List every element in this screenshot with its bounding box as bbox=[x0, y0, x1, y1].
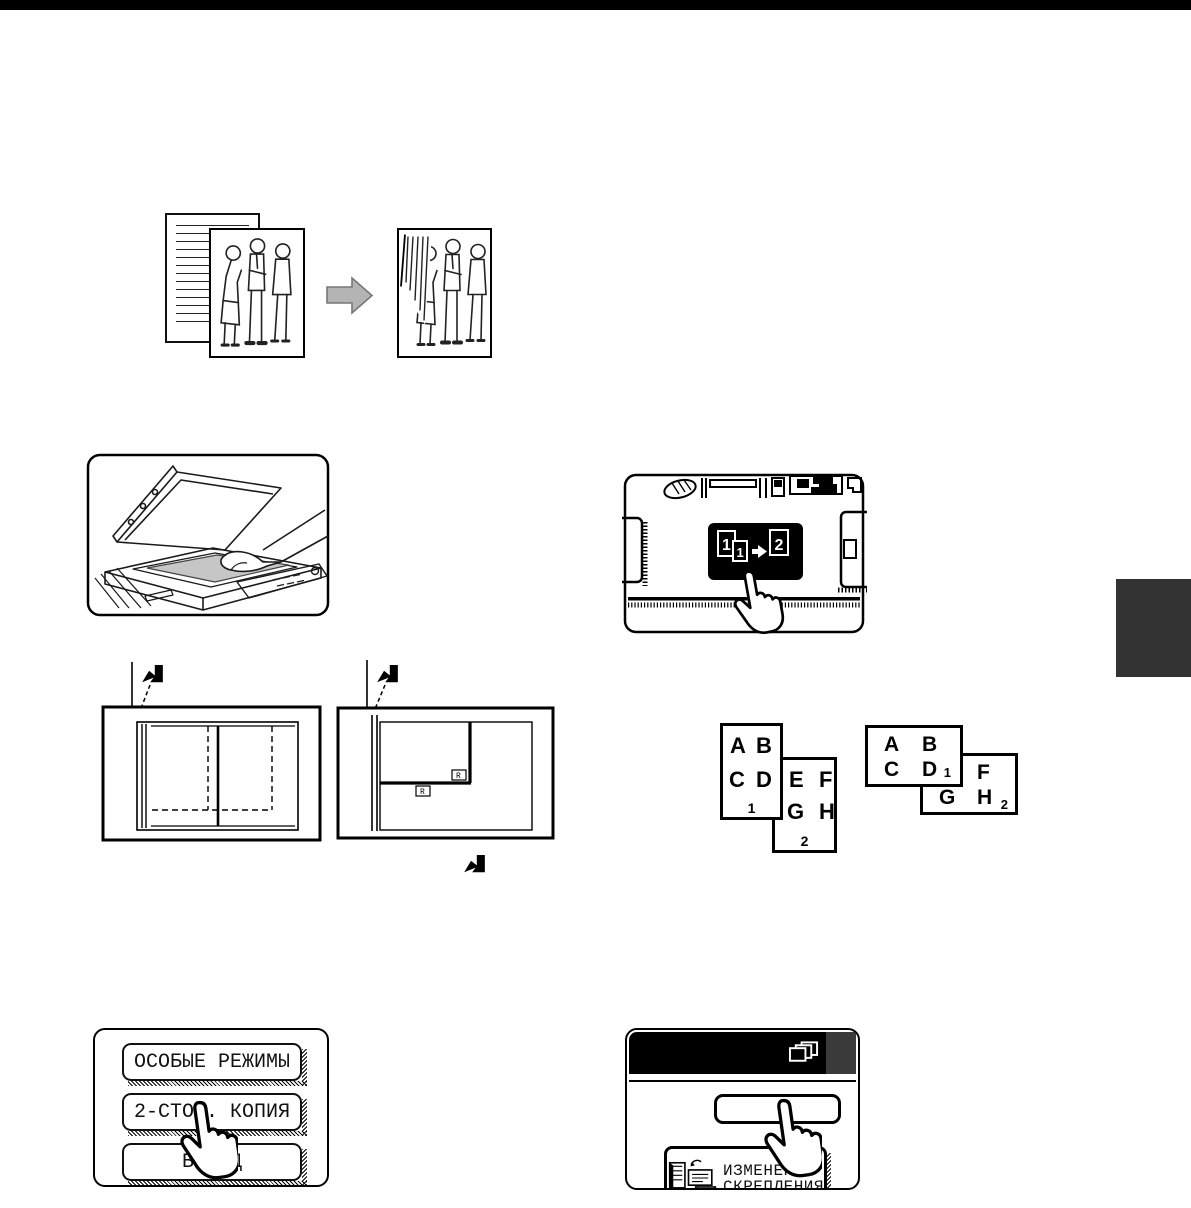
page-letter: A bbox=[884, 734, 899, 755]
digit: 1 bbox=[722, 537, 731, 554]
page-letter: G bbox=[939, 787, 955, 808]
page-number: 2 bbox=[775, 834, 834, 848]
digit: 1 bbox=[737, 545, 744, 560]
page-letter: H bbox=[819, 801, 835, 823]
manual-page: 1 1 2 bbox=[0, 0, 1191, 1208]
page-letter: B bbox=[922, 734, 937, 755]
page-letter: E bbox=[789, 769, 804, 791]
header-corner-block bbox=[826, 1032, 856, 1074]
page-number: 1 bbox=[723, 801, 780, 815]
book-placement-diagram bbox=[95, 655, 330, 850]
chapter-side-tab bbox=[1116, 579, 1191, 677]
size-label-r: R bbox=[456, 772, 461, 781]
touch-panel-right: ИЗМЕНЕНИЕ СКРЕПЛЕНИЯ bbox=[625, 1028, 860, 1190]
page-number: 2 bbox=[1001, 798, 1008, 811]
special-modes-button: ОСОБЫЕ РЕЖИМЫ bbox=[122, 1043, 302, 1081]
fold-back-corner bbox=[399, 230, 489, 355]
right-arrow-icon bbox=[326, 276, 374, 316]
page-letter: D bbox=[756, 769, 772, 791]
pointing-hand-icon bbox=[172, 1098, 238, 1184]
page-letter: H bbox=[977, 787, 992, 808]
divider-line bbox=[629, 1080, 856, 1082]
screen-header-bar bbox=[629, 1032, 856, 1074]
original-placement-diagram: R R bbox=[335, 655, 570, 880]
page-letter: A bbox=[730, 735, 746, 757]
page-letter: F bbox=[819, 769, 832, 791]
size-label-r: R bbox=[420, 788, 425, 797]
copier-platen-figure bbox=[85, 450, 335, 625]
digit: 2 bbox=[775, 537, 784, 554]
people-drawing bbox=[211, 230, 302, 355]
two-sided-mode-key: 1 1 2 bbox=[708, 523, 803, 580]
binding-change-icon bbox=[667, 1155, 719, 1190]
button-label: ОСОБЫЕ РЕЖИМЫ bbox=[134, 1051, 290, 1074]
page-order-landscape-sheet1: A B C D 1 bbox=[865, 725, 963, 787]
operation-panel-figure: 1 1 2 bbox=[622, 470, 867, 637]
copies-icon bbox=[789, 1041, 819, 1066]
pointing-hand-icon bbox=[756, 1096, 822, 1182]
page-letter: F bbox=[977, 762, 990, 783]
corner-mark-icon bbox=[142, 665, 163, 682]
page-order-portrait-sheet1: A B C D 1 bbox=[720, 723, 783, 820]
page-letter: G bbox=[787, 801, 804, 823]
two-sided-copy-sheet bbox=[397, 228, 492, 358]
corner-mark-icon bbox=[377, 665, 398, 682]
page-number: 1 bbox=[944, 766, 951, 779]
page-letter: C bbox=[884, 759, 899, 780]
page-letter: B bbox=[756, 735, 772, 757]
page-letter: D bbox=[922, 759, 937, 780]
corner-mark-icon bbox=[464, 855, 485, 872]
photo-original-sheet bbox=[209, 228, 305, 358]
top-bar bbox=[0, 0, 1191, 10]
page-letter: C bbox=[729, 769, 745, 791]
